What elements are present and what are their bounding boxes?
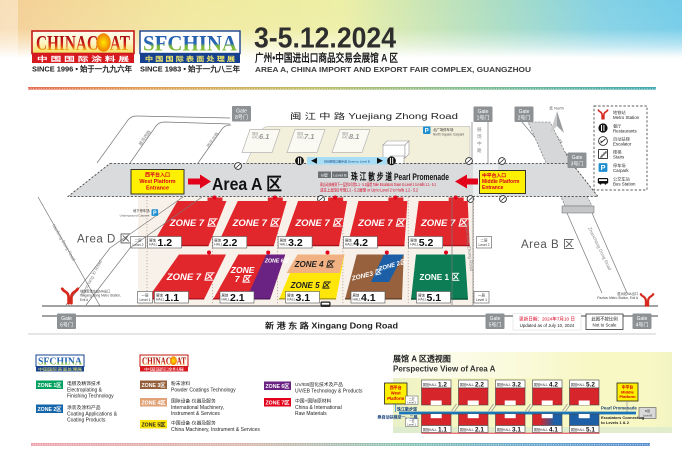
svg-text:ZONE 7 区: ZONE 7 区 [420, 218, 469, 229]
svg-text:2.2: 2.2 [223, 237, 238, 249]
svg-text:3.2: 3.2 [512, 382, 521, 389]
svg-text:Level 1: Level 1 [476, 298, 487, 302]
svg-text:HALL: HALL [410, 243, 419, 247]
svg-text:Entrance: Entrance [482, 185, 504, 191]
svg-text:Level 2: Level 2 [479, 243, 490, 247]
svg-text:Exit A: Exit A [80, 298, 89, 302]
svg-text:Metro Station: Metro Station [613, 115, 640, 120]
svg-text:North Square Carpark: North Square Carpark [433, 132, 465, 136]
svg-text:HALL: HALL [222, 298, 231, 302]
svg-text:Updated as of July 10, 2024: Updated as of July 10, 2024 [520, 323, 575, 328]
svg-text:ZONE 4区: ZONE 4区 [142, 398, 167, 406]
svg-text:B层: B层 [645, 408, 650, 413]
svg-text:Gate: Gate [236, 109, 247, 115]
svg-text:场: 场 [477, 133, 482, 140]
svg-text:Perspective View of Area A: Perspective View of Area A [393, 365, 496, 374]
svg-text:P: P [600, 163, 605, 172]
svg-text:Coating Applications &: Coating Applications & [67, 411, 118, 417]
svg-text:1.2: 1.2 [438, 382, 447, 389]
svg-text:China & International: China & International [295, 405, 342, 411]
svg-text:5号门: 5号门 [489, 322, 502, 329]
svg-text:HALL: HALL [280, 243, 289, 247]
svg-text:HALL: HALL [287, 298, 296, 302]
svg-text:中国+国际原材料: 中国+国际原材料 [295, 398, 332, 405]
svg-text:中: 中 [477, 140, 482, 147]
svg-text:5.2: 5.2 [419, 237, 434, 249]
svg-text:Level 1: Level 1 [407, 422, 416, 426]
svg-text:CHINACOAT: CHINACOAT [36, 31, 130, 55]
svg-text:展馆HALL: 展馆HALL [571, 427, 586, 432]
svg-text:3-5.12.2024: 3-5.12.2024 [254, 23, 396, 55]
svg-text:路: 路 [477, 147, 482, 154]
svg-text:3.1: 3.1 [512, 426, 521, 433]
svg-text:5.1: 5.1 [586, 426, 595, 433]
svg-text:UV/EB固化技术及产品: UV/EB固化技术及产品 [295, 381, 343, 388]
svg-text:SFCHINA: SFCHINA [38, 356, 82, 368]
svg-text:China Machinery, Instrument &: China Machinery, Instrument & Services [171, 427, 260, 433]
svg-text:4.2: 4.2 [549, 382, 558, 389]
svg-text:ZONE 7区: ZONE 7区 [266, 398, 291, 406]
svg-text:Gate: Gate [478, 109, 489, 115]
svg-text:Platform: Platform [387, 396, 404, 401]
svg-text:西平台: 西平台 [390, 384, 402, 390]
svg-text:7 区: 7 区 [235, 274, 252, 284]
svg-text:4.1: 4.1 [361, 292, 376, 304]
svg-text:HALL: HALL [214, 243, 223, 247]
svg-text:ZONE 2区: ZONE 2区 [38, 405, 63, 413]
svg-text:HALL: HALL [156, 298, 165, 302]
svg-text:展馆HALL: 展馆HALL [534, 427, 549, 432]
svg-text:中国国际涂料展: 中国国际涂料展 [144, 367, 185, 372]
svg-text:International Machinery,: International Machinery, [171, 405, 224, 411]
svg-text:8.1: 8.1 [349, 132, 359, 141]
svg-text:SINCE 1983 • 始于一九八三年: SINCE 1983 • 始于一九八三年 [140, 64, 240, 74]
svg-text:HALL: HALL [149, 243, 158, 247]
svg-text:Stairs: Stairs [613, 155, 625, 160]
svg-text:2.2: 2.2 [475, 382, 484, 389]
svg-text:4.2: 4.2 [353, 237, 368, 249]
svg-text:国际设备·仪器及服务: 国际设备·仪器及服务 [171, 398, 216, 405]
svg-text:SFCHINA: SFCHINA [143, 31, 237, 56]
svg-text:ZONE 7 区: ZONE 7 区 [357, 218, 406, 229]
svg-text:P: P [153, 211, 157, 217]
svg-text:ZONE 7 区: ZONE 7 区 [294, 218, 343, 229]
svg-text:2.1: 2.1 [475, 426, 484, 433]
svg-text:Instrument & Services: Instrument & Services [171, 411, 220, 417]
svg-text:中平台入口: 中平台入口 [482, 172, 506, 179]
svg-text:Area B 区: Area B 区 [521, 239, 575, 251]
svg-text:5.2: 5.2 [586, 382, 595, 389]
svg-text:1.2: 1.2 [158, 237, 173, 249]
svg-text:to Levels 1 & 2: to Levels 1 & 2 [601, 420, 630, 425]
svg-text:电镀及精饰技术: 电镀及精饰技术 [67, 380, 101, 387]
svg-text:ZONE 3区: ZONE 3区 [142, 381, 167, 389]
svg-text:3.2: 3.2 [288, 237, 303, 249]
svg-text:往B层珠江散步道 Down to Level B: 往B层珠江散步道 Down to Level B [324, 159, 370, 164]
svg-text:2号门: 2号门 [518, 115, 531, 122]
svg-text:中国设备·仪器及服务: 中国设备·仪器及服务 [171, 420, 216, 427]
svg-text:珠江散步道: 珠江散步道 [397, 406, 417, 412]
svg-text:HALL: HALL [353, 298, 362, 302]
svg-text:Not to Scale: Not to Scale [593, 323, 617, 328]
svg-text:展馆HALL: 展馆HALL [423, 427, 438, 432]
svg-text:5.1: 5.1 [427, 292, 442, 304]
svg-text:乘自动扶梯到下一层到1号馆1.1 - 5.1展馆 Take: 乘自动扶梯到下一层到1号馆1.1 - 5.1展馆 Take Escalators… [320, 181, 436, 187]
svg-text:Bus Station: Bus Station [613, 182, 636, 187]
svg-text:Gate: Gate [572, 155, 583, 161]
svg-text:AREA A, CHINA IMPORT AND EXPOR: AREA A, CHINA IMPORT AND EXPORT FAIR COM… [255, 65, 532, 74]
svg-text:北 North: 北 North [549, 105, 564, 111]
svg-text:Pearl Promenade: Pearl Promenade [601, 405, 637, 410]
svg-text:Platform: Platform [619, 394, 636, 399]
svg-text:一层: 一层 [478, 293, 486, 298]
svg-text:8号门: 8号门 [235, 114, 248, 121]
svg-text:ZONE 4 区: ZONE 4 区 [294, 260, 336, 269]
svg-text:展馆HALL: 展馆HALL [460, 427, 475, 432]
svg-text:Underground Carpark: Underground Carpark [120, 213, 150, 217]
svg-text:北广场停车场: 北广场停车场 [433, 127, 454, 132]
svg-text:地下停车场: 地下停车场 [133, 208, 150, 213]
svg-text:1号门: 1号门 [477, 115, 490, 122]
svg-text:Finishing Technology: Finishing Technology [67, 394, 114, 400]
svg-text:Carpark: Carpark [613, 168, 629, 173]
svg-text:西平台入口: 西平台入口 [145, 172, 170, 179]
svg-text:HALL: HALL [418, 298, 427, 302]
svg-text:Area A 区: Area A 区 [212, 174, 282, 194]
svg-text:广州•中国进出口商品交易会展馆 A 区: 广州•中国进出口商品交易会展馆 A 区 [255, 51, 398, 65]
svg-text:Area D 区: Area D 区 [77, 234, 132, 246]
svg-text:6.1: 6.1 [259, 132, 269, 141]
svg-text:7.1: 7.1 [304, 132, 314, 141]
svg-text:ZONE 7 区: ZONE 7 区 [169, 218, 218, 229]
svg-text:Level B: Level B [333, 173, 347, 178]
svg-text:Gate: Gate [637, 316, 648, 322]
svg-text:二层: 二层 [409, 396, 415, 401]
svg-text:CHINACOAT: CHINACOAT [142, 357, 186, 368]
svg-text:Raw Materials: Raw Materials [295, 411, 327, 417]
svg-text:Restaurants: Restaurants [613, 129, 637, 134]
svg-text:B层: B层 [321, 172, 328, 178]
svg-text:展馆HALL: 展馆HALL [497, 427, 512, 432]
svg-text:UV/EB Technology & Products: UV/EB Technology & Products [295, 388, 363, 394]
svg-text:闽 江 中 路 Yuejiang Zhong Road: 闽 江 中 路 Yuejiang Zhong Road [290, 111, 458, 121]
svg-text:一层: 一层 [141, 293, 149, 298]
svg-text:Pazhou Metro Station, Exit A: Pazhou Metro Station, Exit A [597, 296, 638, 300]
svg-text:中 国 国 际 表 面 处 理 展: 中 国 国 际 表 面 处 理 展 [145, 54, 236, 63]
svg-text:粉末涂料: 粉末涂料 [171, 380, 190, 387]
svg-text:ZONE 5 区: ZONE 5 区 [290, 281, 332, 290]
svg-text:Level 2: Level 2 [407, 400, 416, 404]
svg-text:展馆 A 区透视图: 展馆 A 区透视图 [392, 354, 451, 364]
svg-text:4.1: 4.1 [549, 426, 558, 433]
svg-text:ZONE 7 区: ZONE 7 区 [166, 272, 215, 283]
svg-text:展馆HALL: 展馆HALL [497, 382, 512, 387]
svg-text:Powder Coatings Technology: Powder Coatings Technology [171, 387, 236, 393]
svg-text:ZONE 7 区: ZONE 7 区 [232, 218, 281, 229]
svg-text:1.1: 1.1 [165, 292, 180, 304]
svg-text:2.1: 2.1 [230, 292, 245, 304]
svg-text:1.1: 1.1 [438, 426, 447, 433]
svg-text:展馆HALL: 展馆HALL [460, 382, 475, 387]
svg-text:展馆HALL: 展馆HALL [534, 382, 549, 387]
svg-text:3号门: 3号门 [571, 161, 584, 168]
svg-text:Gate: Gate [61, 316, 72, 322]
svg-text:ZONE 1 区: ZONE 1 区 [420, 272, 460, 282]
svg-text:West: West [391, 391, 402, 396]
svg-text:中 国 国 际 涂 料 展: 中 国 国 际 涂 料 展 [37, 54, 130, 63]
svg-text:Level 1: Level 1 [140, 298, 151, 302]
svg-text:新 港 东 路 Xingang Dong Road: 新 港 东 路 Xingang Dong Road [265, 321, 398, 331]
svg-text:Coating Products: Coating Products [67, 418, 106, 424]
svg-text:ZONE 1区: ZONE 1区 [38, 381, 63, 389]
svg-text:Gate: Gate [519, 109, 530, 115]
svg-text:此图不按比例: 此图不按比例 [591, 316, 618, 323]
svg-text:展馆HALL: 展馆HALL [423, 382, 438, 387]
svg-text:Escalator: Escalator [613, 142, 632, 147]
svg-text:ZONE 5区: ZONE 5区 [142, 420, 167, 428]
svg-text:SINCE 1996 • 始于一九九六年: SINCE 1996 • 始于一九九六年 [32, 64, 132, 74]
svg-text:乘自动扶梯至一、二层: 乘自动扶梯至一、二层 [377, 414, 418, 420]
svg-text:中国国际表面处理展: 中国国际表面处理展 [38, 367, 83, 372]
svg-text:二层: 二层 [480, 238, 488, 243]
svg-text:展馆HALL: 展馆HALL [571, 382, 586, 387]
svg-text:更新日期：2024年7月10 日: 更新日期：2024年7月10 日 [519, 316, 575, 323]
svg-text:HALL: HALL [345, 243, 354, 247]
svg-text:Entrance: Entrance [146, 186, 169, 192]
svg-text:或往上层到2号馆1.2 - 5.2展馆 or Up to L: 或往上层到2号馆1.2 - 5.2展馆 or Up to Level 2 to … [320, 187, 419, 193]
svg-text:3.1: 3.1 [296, 292, 311, 304]
svg-text:ZONE 6区: ZONE 6区 [266, 382, 291, 390]
svg-text:Electroplating &: Electroplating & [67, 387, 103, 393]
svg-text:4号门: 4号门 [636, 322, 649, 329]
svg-text:ZONE 6区: ZONE 6区 [264, 258, 290, 265]
svg-text:P: P [425, 129, 429, 135]
svg-text:涂装及涂料产品: 涂装及涂料产品 [67, 404, 101, 411]
svg-text:6号门: 6号门 [60, 322, 73, 329]
svg-text:Gate: Gate [490, 316, 501, 322]
svg-text:West Platform: West Platform [139, 179, 175, 185]
